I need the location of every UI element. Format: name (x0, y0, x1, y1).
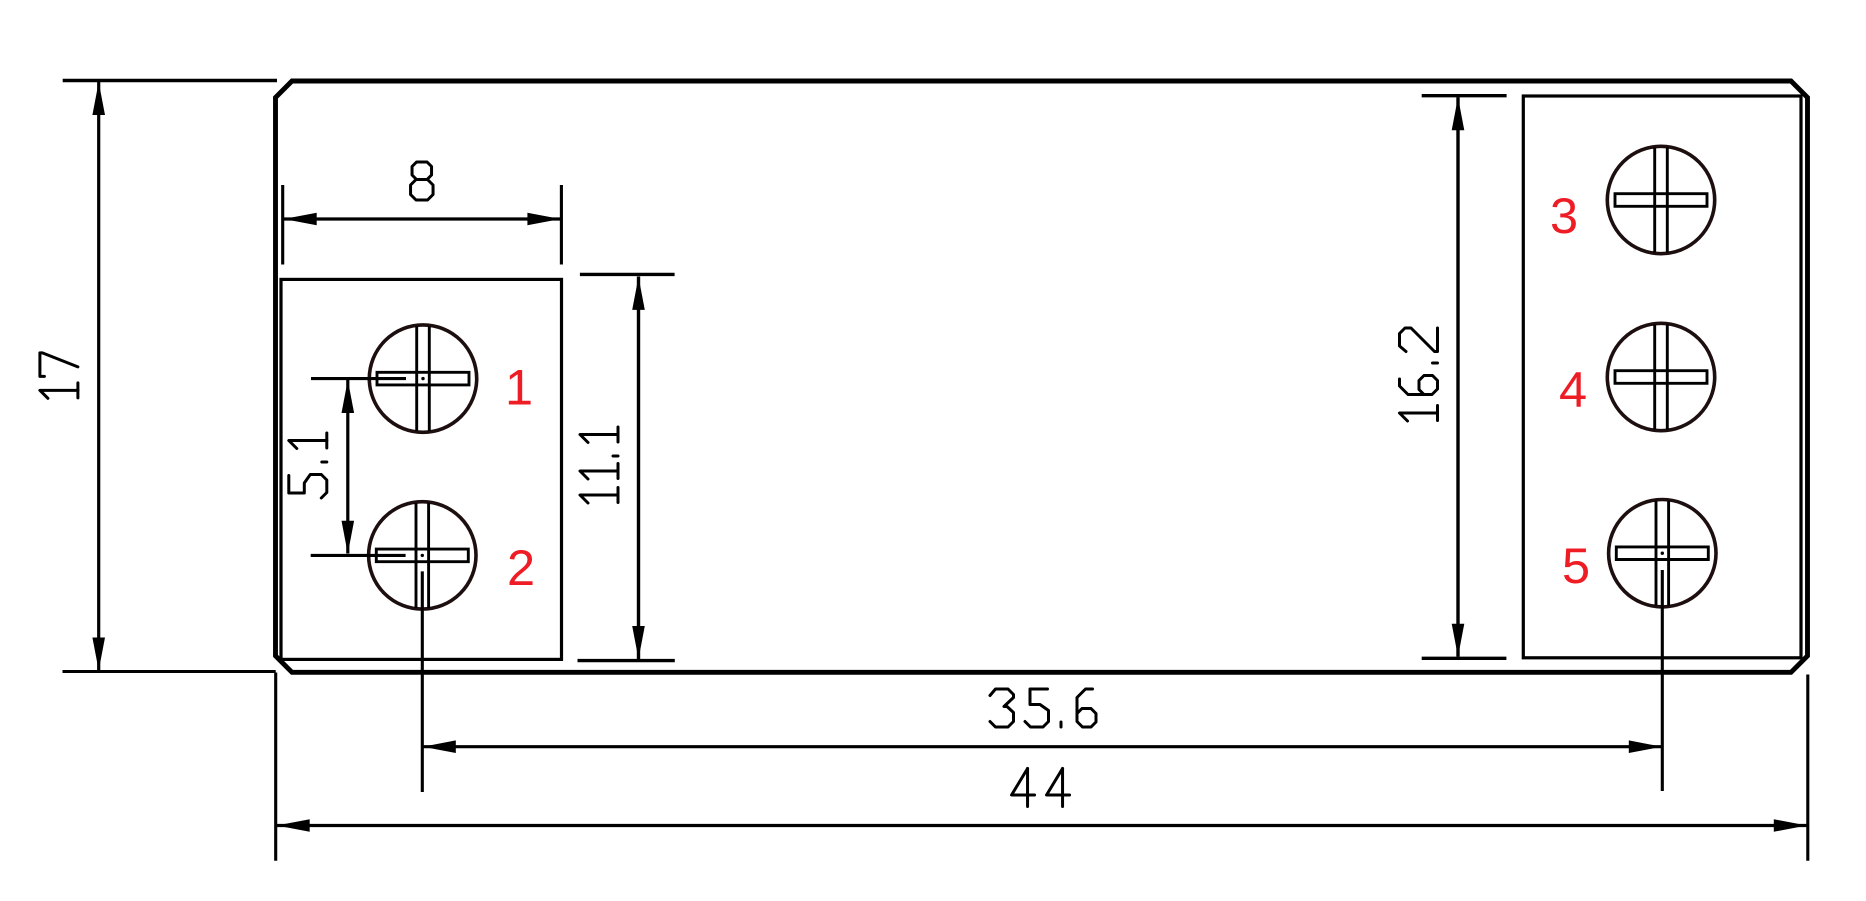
svg-text:5: 5 (1562, 537, 1590, 594)
svg-text:3: 3 (1550, 187, 1578, 244)
svg-text:1: 1 (505, 359, 533, 416)
svg-text:2: 2 (507, 539, 535, 596)
svg-text:4: 4 (1559, 361, 1587, 418)
